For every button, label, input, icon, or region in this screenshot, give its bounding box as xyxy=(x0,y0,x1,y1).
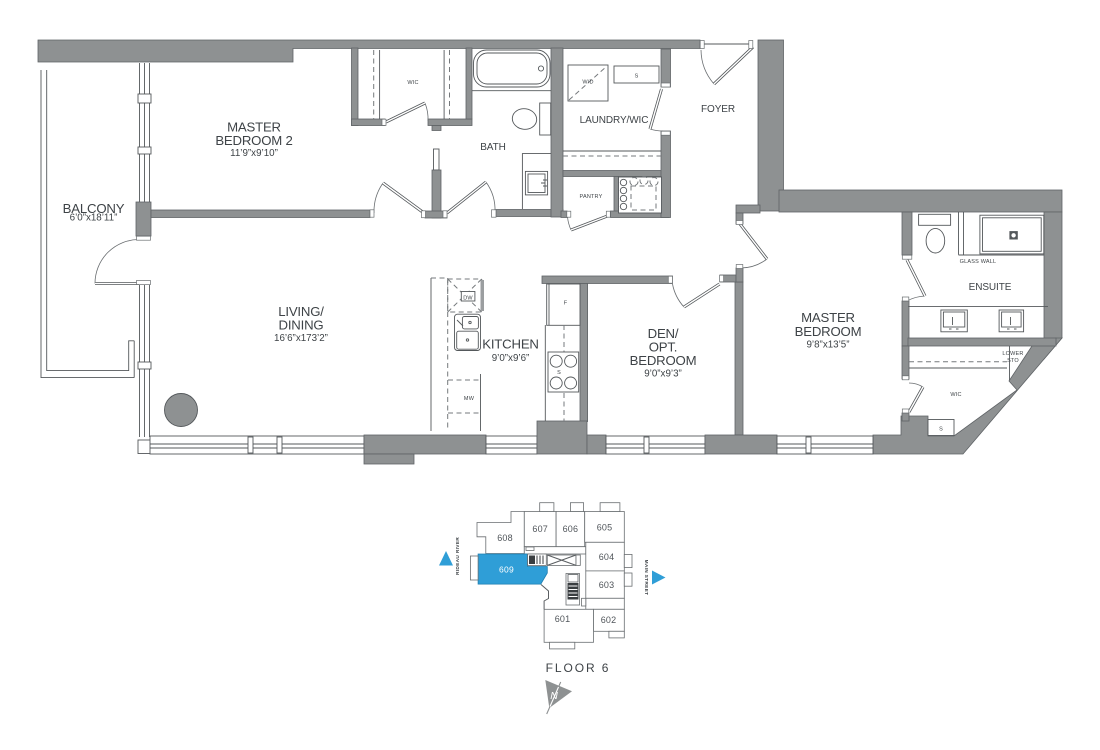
svg-text:RIDEAU RIVER: RIDEAU RIVER xyxy=(455,537,461,575)
svg-text:608: 608 xyxy=(497,533,513,543)
svg-text:WIC: WIC xyxy=(950,392,961,398)
svg-text:607: 607 xyxy=(532,524,548,534)
svg-text:605: 605 xyxy=(597,523,613,533)
svg-text:DW: DW xyxy=(463,296,473,302)
svg-text:604: 604 xyxy=(599,552,615,562)
svg-text:9’0”x9’3”: 9’0”x9’3” xyxy=(644,369,682,380)
svg-text:S: S xyxy=(557,370,561,376)
svg-text:N: N xyxy=(550,690,558,702)
svg-text:BEDROOM: BEDROOM xyxy=(795,324,862,339)
svg-text:9’8”x13’5”: 9’8”x13’5” xyxy=(806,340,849,351)
svg-text:603: 603 xyxy=(599,580,615,590)
svg-text:LOWER: LOWER xyxy=(1002,351,1023,357)
svg-text:FLOOR 6: FLOOR 6 xyxy=(546,661,611,675)
svg-text:FOYER: FOYER xyxy=(701,104,735,115)
svg-text:S: S xyxy=(939,427,943,433)
svg-text:11’9”x9’10”: 11’9”x9’10” xyxy=(230,148,278,159)
svg-text:6’0”x18’11”: 6’0”x18’11” xyxy=(70,213,118,224)
svg-text:9’0”x9’6”: 9’0”x9’6” xyxy=(492,353,530,364)
svg-text:F: F xyxy=(564,301,568,307)
svg-text:LAUNDRY/WIC: LAUNDRY/WIC xyxy=(580,115,649,126)
svg-text:PANTRY: PANTRY xyxy=(579,194,602,200)
svg-text:16’6”x173’2”: 16’6”x173’2” xyxy=(274,333,328,344)
svg-text:ENSUITE: ENSUITE xyxy=(969,282,1012,293)
svg-text:S: S xyxy=(635,74,639,80)
svg-text:WIC: WIC xyxy=(407,80,418,86)
svg-text:MASTER: MASTER xyxy=(801,310,855,325)
svg-text:GLASS WALL: GLASS WALL xyxy=(960,259,997,265)
svg-text:W/D: W/D xyxy=(582,80,593,86)
svg-text:STO: STO xyxy=(1007,358,1019,364)
svg-text:DINING: DINING xyxy=(279,318,324,333)
svg-text:MW: MW xyxy=(464,396,475,402)
svg-text:606: 606 xyxy=(563,524,579,534)
svg-text:KITCHEN: KITCHEN xyxy=(482,337,538,352)
svg-text:602: 602 xyxy=(601,615,617,625)
svg-text:601: 601 xyxy=(555,614,571,624)
svg-text:609: 609 xyxy=(499,565,514,575)
svg-text:BEDROOM 2: BEDROOM 2 xyxy=(215,133,292,148)
svg-text:MAIN STREET: MAIN STREET xyxy=(643,560,649,596)
svg-text:BEDROOM: BEDROOM xyxy=(630,353,697,368)
svg-text:BATH: BATH xyxy=(480,142,506,153)
